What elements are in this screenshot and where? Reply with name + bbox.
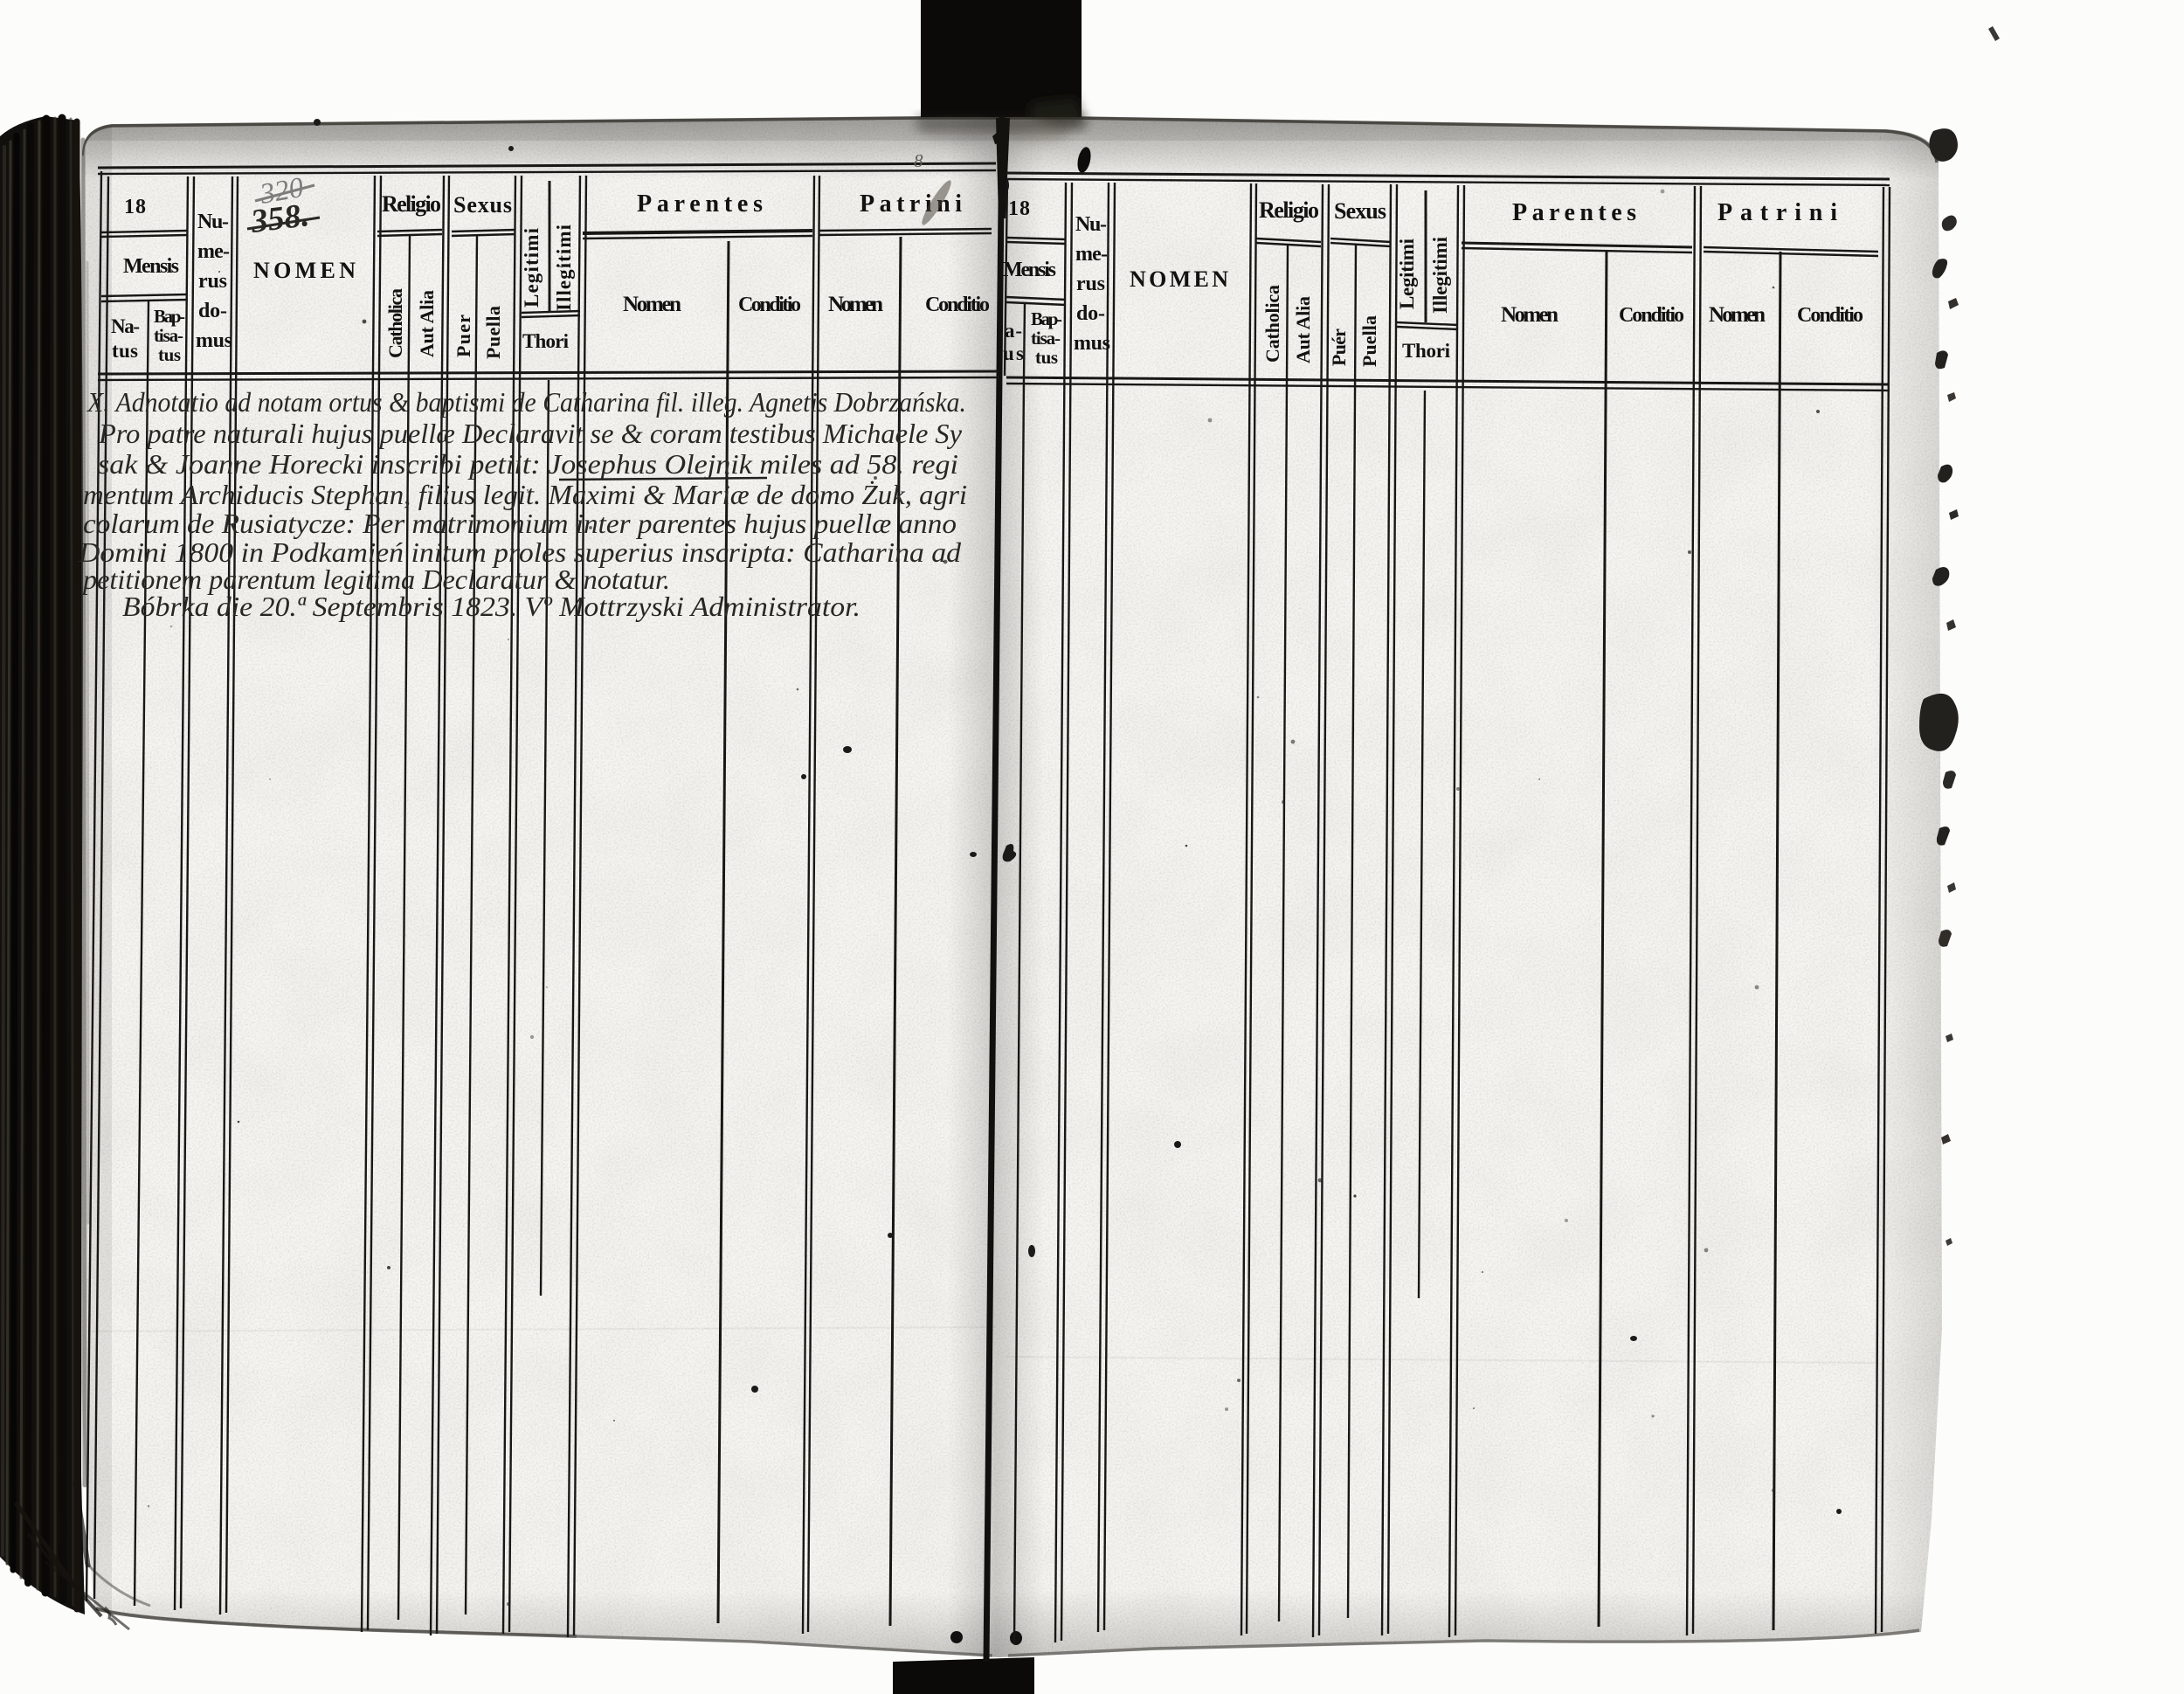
svg-text:Catholica: Catholica (1261, 285, 1283, 363)
svg-text:Legitimi: Legitimi (1396, 238, 1418, 309)
svg-text:Bap-: Bap- (154, 306, 185, 327)
svg-text:NOMEN: NOMEN (253, 258, 360, 283)
svg-text:do-: do- (1076, 302, 1105, 325)
svg-text:Thori: Thori (1402, 340, 1451, 362)
svg-text:Nomen: Nomen (828, 293, 883, 316)
svg-text:Puella: Puella (1358, 315, 1380, 367)
svg-text:do-: do- (198, 300, 227, 322)
svg-text:Thori: Thori (522, 330, 570, 352)
svg-text:Legitimi: Legitimi (521, 227, 543, 308)
svg-text:us: us (1003, 342, 1024, 364)
svg-text:Conditio: Conditio (1797, 304, 1863, 327)
svg-text:Nomen: Nomen (1501, 303, 1559, 327)
svg-text:358.: 358. (248, 197, 311, 240)
svg-text:Na-: Na- (111, 315, 140, 337)
svg-text:Parentes: Parentes (1512, 199, 1641, 226)
svg-text:Bóbrka die 20.ª Septembris 182: Bóbrka die 20.ª Septembris 1823. Vº Mott… (122, 591, 860, 622)
svg-text:mentum Archiducis Stephan, fil: mentum Archiducis Stephan, filius legit.… (83, 479, 967, 510)
svg-text:colarum de Rusiatycze: Per mat: colarum de Rusiatycze: Per matrimonium i… (83, 508, 957, 539)
svg-text:Mensis: Mensis (123, 255, 179, 278)
svg-text:me-: me- (1075, 243, 1108, 266)
svg-text:Religio: Religio (1259, 197, 1319, 223)
svg-text:Nomen: Nomen (1709, 303, 1766, 327)
svg-text:tisa-: tisa- (1031, 328, 1061, 349)
svg-text:Catholica: Catholica (384, 288, 406, 358)
svg-text:Illegitimi: Illegitimi (1429, 236, 1451, 314)
svg-text:me-: me- (197, 240, 230, 263)
svg-text:sak & Joanne Horecki inscribi: sak & Joanne Horecki inscribi petiit: Jo… (98, 448, 958, 480)
svg-text:Illegitimi: Illegitimi (553, 224, 575, 311)
svg-text:18: 18 (124, 196, 146, 218)
svg-text:Puer: Puer (453, 315, 474, 357)
svg-text:tus: tus (1035, 347, 1058, 368)
svg-text:Sexus: Sexus (453, 192, 512, 218)
svg-text:Mensis: Mensis (1003, 259, 1056, 281)
svg-text:Conditio: Conditio (1619, 304, 1684, 327)
svg-text:Nu-: Nu- (197, 211, 229, 233)
svg-text:Religio: Religio (382, 191, 441, 217)
svg-text:8: 8 (914, 150, 923, 171)
svg-text:mus: mus (196, 329, 232, 352)
svg-text:rus: rus (198, 270, 227, 293)
svg-text:rus: rus (1076, 273, 1105, 295)
svg-text:Aut Alia: Aut Alia (416, 290, 438, 357)
svg-text:Aut Alia: Aut Alia (1292, 296, 1314, 363)
svg-text:Conditio: Conditio (925, 294, 990, 316)
svg-text:Sexus: Sexus (1334, 198, 1386, 224)
svg-text:Bap-: Bap- (1031, 308, 1062, 329)
svg-text:tus: tus (112, 340, 138, 362)
svg-text:Nomen: Nomen (623, 293, 681, 316)
svg-text:NOMEN: NOMEN (1130, 266, 1233, 292)
svg-text:18: 18 (1008, 197, 1030, 220)
svg-text:tisa-: tisa- (154, 325, 183, 346)
svg-text:Puella: Puella (482, 306, 504, 359)
svg-text:Pro patre naturali hujus puell: Pro patre naturali hujus puellæ Declarav… (98, 418, 963, 449)
svg-text:Patrini: Patrini (860, 190, 967, 218)
svg-text:a-: a- (1005, 320, 1022, 342)
svg-text:Patrini: Patrini (1717, 199, 1842, 226)
svg-text:tus: tus (158, 344, 181, 365)
svg-text:Conditio: Conditio (738, 294, 801, 316)
svg-text:X. Adnotatio ad notam ortus &: X. Adnotatio ad notam ortus & baptismi d… (86, 386, 966, 418)
svg-text:Parentes: Parentes (637, 190, 768, 218)
svg-text:Puér: Puér (1328, 328, 1350, 366)
svg-text:mus: mus (1074, 332, 1110, 355)
svg-text:Nu-: Nu- (1075, 213, 1107, 236)
